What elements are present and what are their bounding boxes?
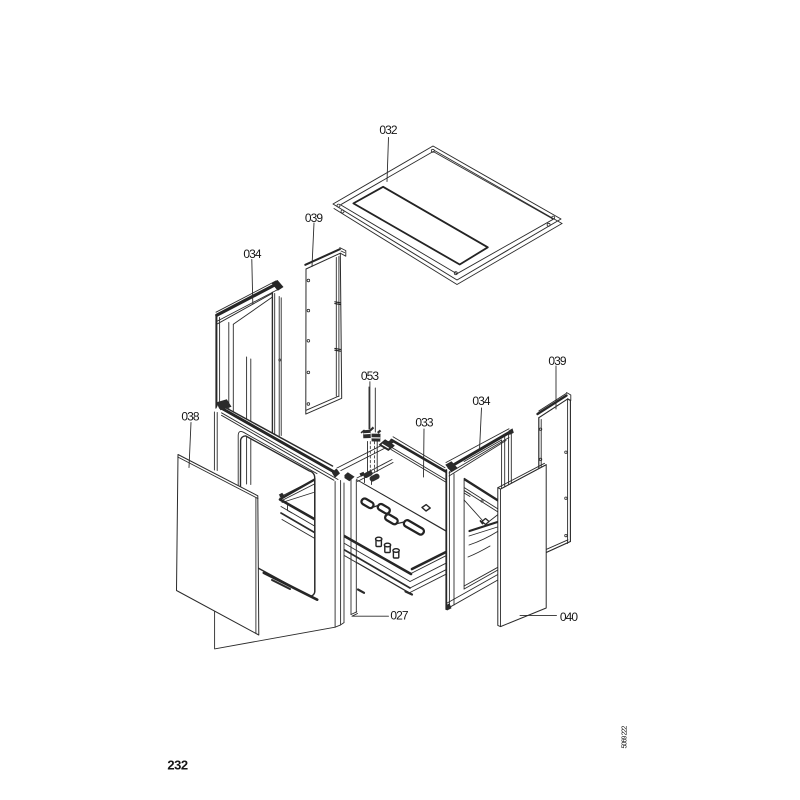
svg-text:039: 039 bbox=[548, 354, 567, 368]
svg-text:5069 222: 5069 222 bbox=[622, 725, 629, 748]
svg-text:032: 032 bbox=[379, 123, 398, 137]
svg-text:038: 038 bbox=[181, 409, 200, 423]
svg-text:034: 034 bbox=[243, 247, 262, 261]
svg-text:040: 040 bbox=[560, 610, 579, 624]
svg-text:232: 232 bbox=[167, 758, 187, 773]
svg-text:033: 033 bbox=[415, 416, 434, 430]
svg-text:053: 053 bbox=[361, 369, 380, 383]
svg-text:034: 034 bbox=[472, 394, 491, 408]
svg-text:039: 039 bbox=[305, 211, 324, 225]
svg-text:027: 027 bbox=[390, 608, 409, 622]
